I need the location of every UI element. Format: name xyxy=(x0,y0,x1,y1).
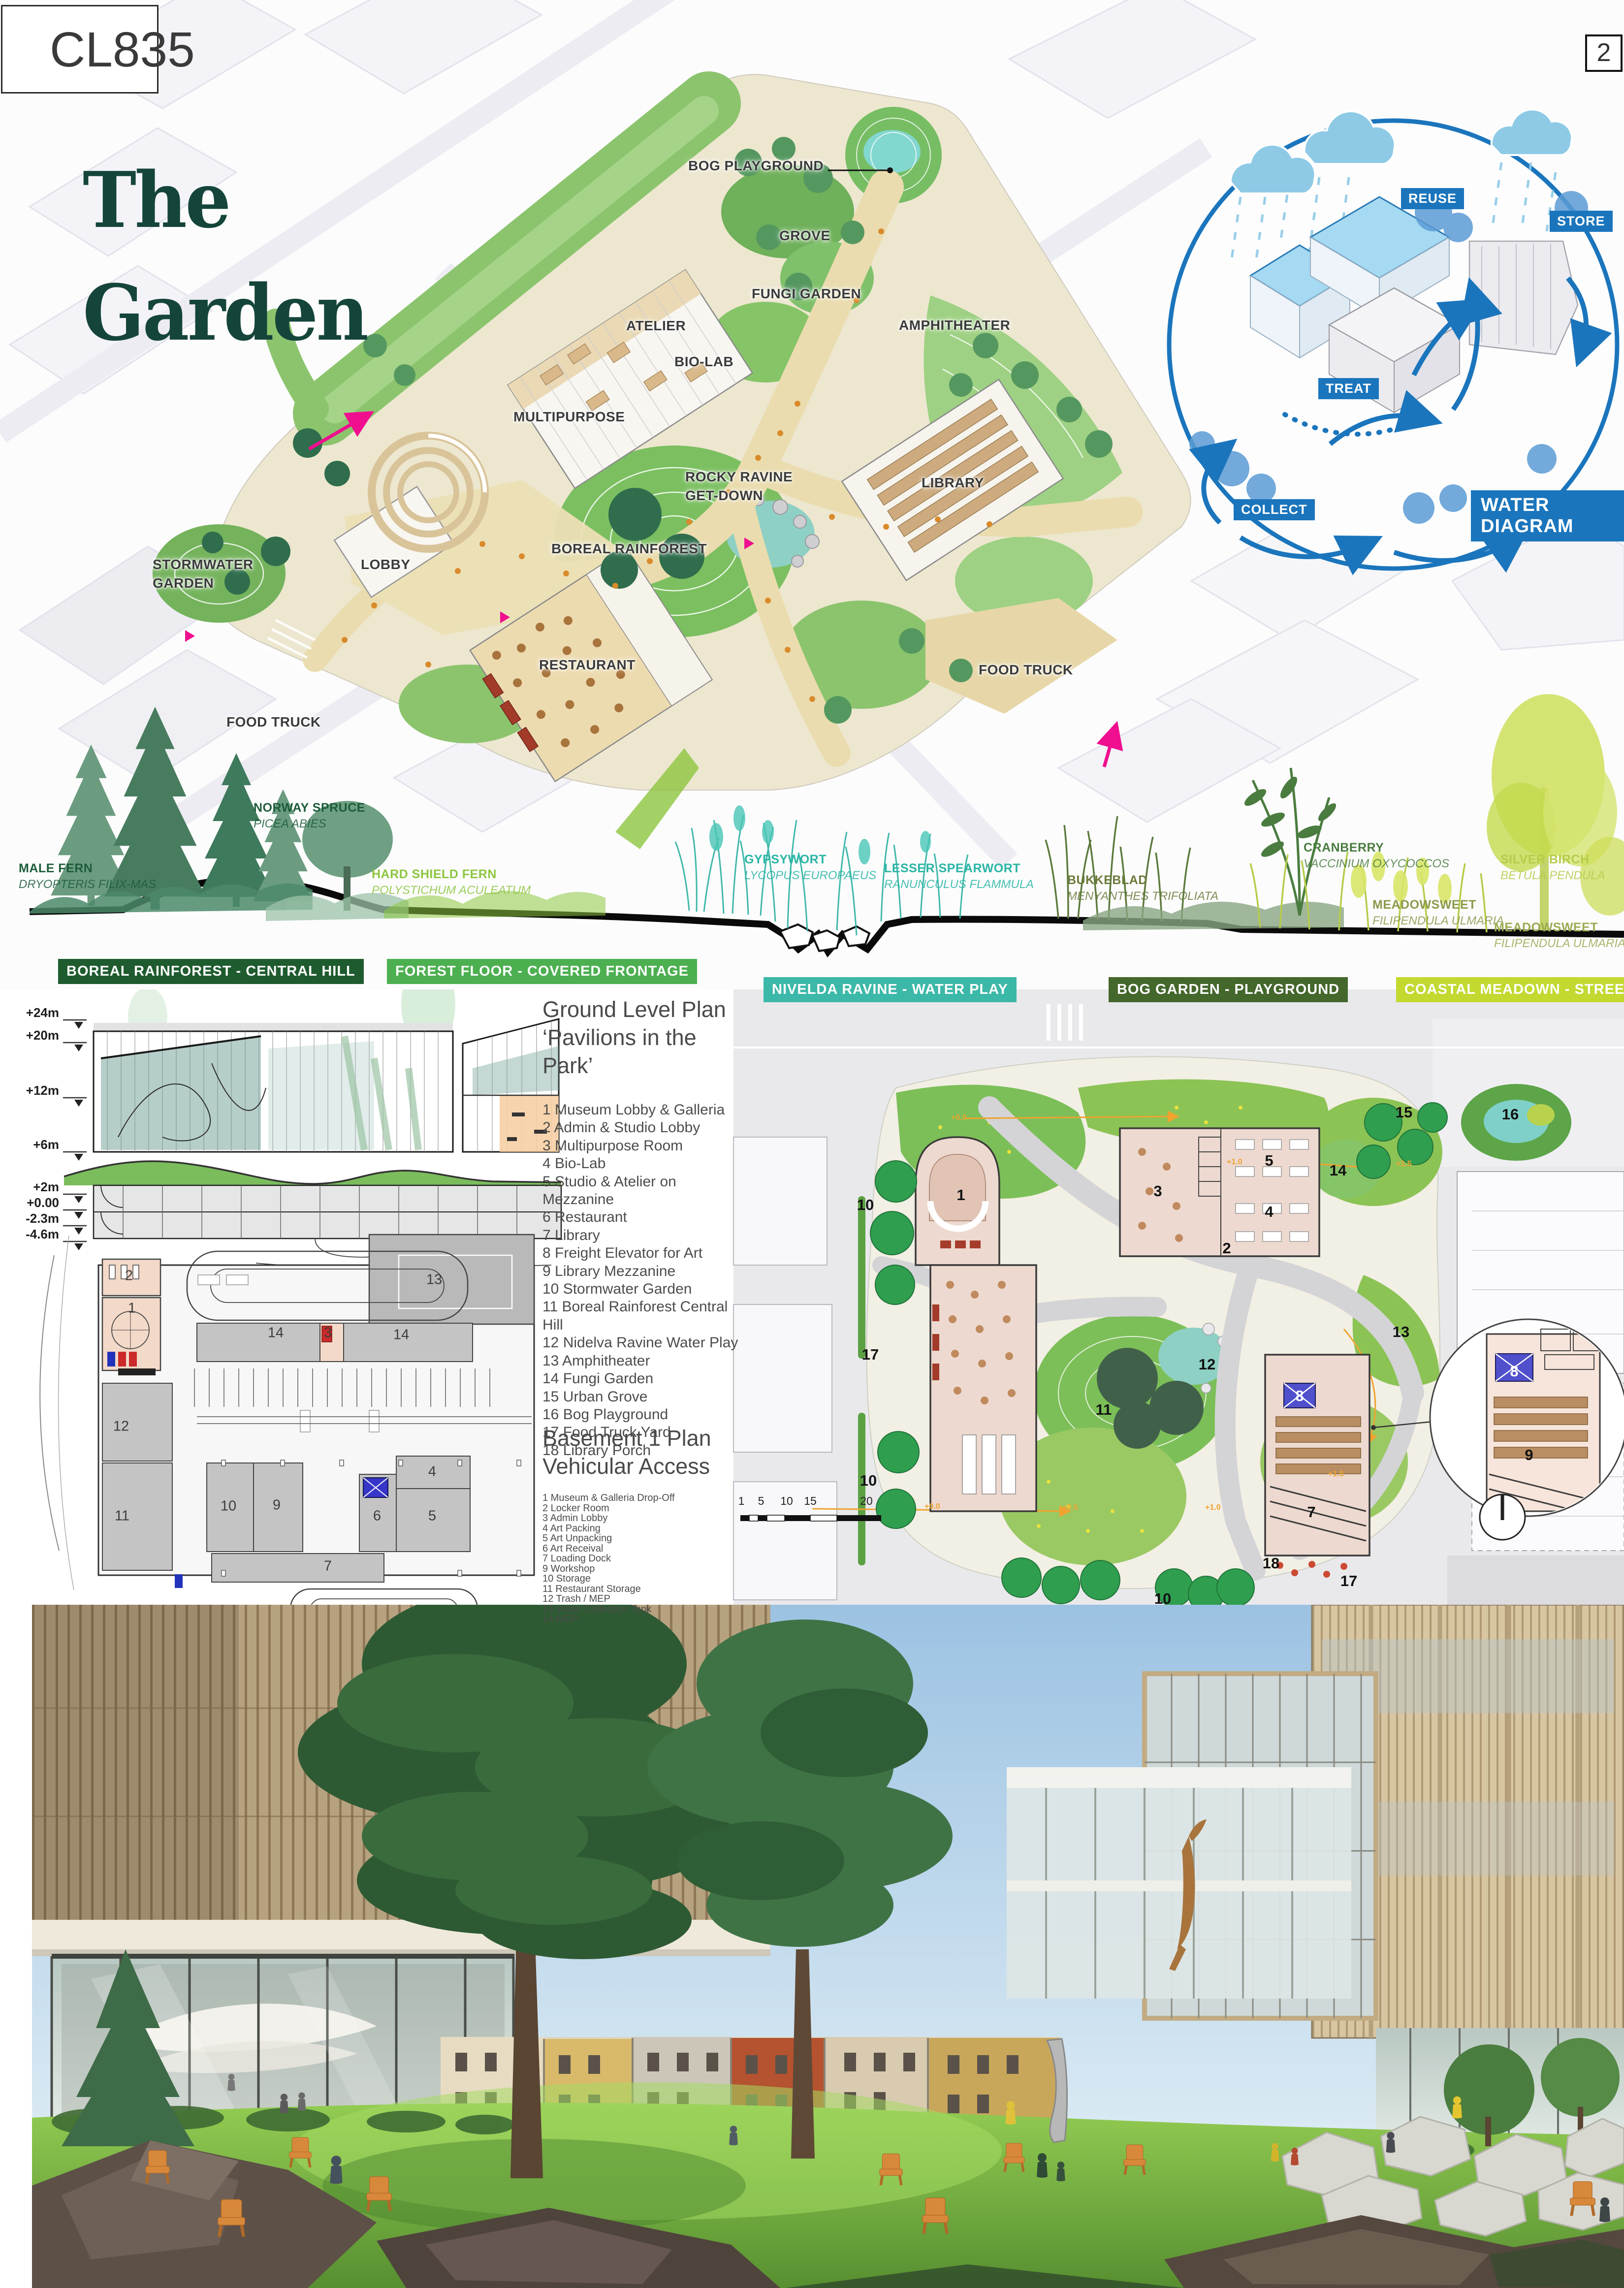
scale-1: 1 xyxy=(738,1494,745,1508)
elevation-6m: +6m xyxy=(4,1137,59,1152)
basement-legend-subtitle: Vehicular Access xyxy=(542,1452,749,1480)
species-silver-birch: SILVER BIRCHBETULA PENDULA xyxy=(1500,852,1605,883)
ground-legend-subtitle: ‘Pavilions in the Park’ xyxy=(542,1023,739,1080)
water-step-reuse: REUSE xyxy=(1401,188,1464,209)
legend-item: 12 Trash / MEP xyxy=(542,1594,749,1604)
page-number-box: 2 xyxy=(1585,34,1623,72)
gp-num-13: 13 xyxy=(1393,1323,1409,1341)
elevation-n4-6: -4.6m xyxy=(4,1227,59,1242)
entry-code: CL835 xyxy=(50,22,195,77)
spot-elev-c: +1.5 xyxy=(1396,1160,1412,1169)
legend-item: 13 Amphitheater xyxy=(542,1352,739,1370)
legend-item: 1 Museum & Galleria Drop-Off xyxy=(542,1493,749,1503)
gp-num-10b: 10 xyxy=(860,1472,877,1490)
gp-num-17b: 17 xyxy=(1340,1572,1357,1590)
legend-item: 8 Freight Elevator for Art xyxy=(542,1244,739,1262)
gp-num-15: 15 xyxy=(1396,1104,1412,1121)
bp-num-4: 4 xyxy=(428,1464,436,1480)
scale-5: 5 xyxy=(758,1494,764,1508)
spot-elev-d: +1.5 xyxy=(1328,1470,1344,1479)
elevation-24m: +24m xyxy=(4,1005,59,1020)
bp-num-3: 3 xyxy=(324,1325,332,1341)
legend-item: 15 Urban Grove xyxy=(542,1388,739,1406)
legend-item: 2 Admin & Studio Lobby xyxy=(542,1119,739,1137)
gp-num-14: 14 xyxy=(1330,1162,1346,1179)
legend-item: 11 Restaurant Storage xyxy=(542,1584,749,1594)
label-food-truck-west: FOOD TRUCK xyxy=(226,713,321,731)
legend-item: 7 Library xyxy=(542,1227,739,1244)
scale-10: 10 xyxy=(780,1494,793,1508)
label-multipurpose: MULTIPURPOSE xyxy=(513,408,625,426)
competition-board: CL835 2 The Garden BOG PLAYGROUND GROVE … xyxy=(0,0,1624,2288)
bp-num-12: 12 xyxy=(113,1419,129,1435)
label-boreal-rainforest: BOREAL RAINFOREST xyxy=(551,540,707,558)
water-diagram-title: WATER DIAGRAM xyxy=(1471,490,1624,541)
legend-item: 10 Stormwater Garden xyxy=(542,1280,739,1298)
basement-plan-legend: Basement 1 Plan Vehicular Access 1 Museu… xyxy=(542,1424,749,1624)
library-detail-bubble xyxy=(1430,1319,1624,1516)
bp-num-14a: 14 xyxy=(268,1325,284,1341)
zone-bar-forest-floor: FOREST FLOOR - COVERED FRONTAGE xyxy=(387,959,697,984)
elevation-2m: +2m xyxy=(4,1179,59,1195)
gp-num-10a: 10 xyxy=(857,1196,874,1214)
legend-item: 6 Art Receival xyxy=(542,1544,749,1554)
page-number: 2 xyxy=(1597,38,1611,67)
label-restaurant: RESTAURANT xyxy=(539,656,636,674)
scale-20: 20 xyxy=(860,1494,873,1508)
legend-item: 9 Library Mezzanine xyxy=(542,1263,739,1280)
species-lesser-spearwort: LESSER SPEARWORTRANUNCULUS FLAMMULA xyxy=(884,860,1034,892)
label-fungi-garden: FUNGI GARDEN xyxy=(752,285,861,303)
label-lobby: LOBBY xyxy=(361,555,411,574)
gp-num-4: 4 xyxy=(1265,1203,1273,1221)
ground-plan-legend: Ground Level Plan ‘Pavilions in the Park… xyxy=(542,995,739,1460)
legend-item: 5 Art Unpacking xyxy=(542,1533,749,1544)
legend-item: 7 Loading Dock xyxy=(542,1554,749,1564)
spot-elev-e: +0.0 xyxy=(924,1502,940,1511)
legend-item: 14 MEP xyxy=(542,1614,749,1624)
species-cranberry: CRANBERRYVACCINIUM OXYCOCCOS xyxy=(1304,840,1449,871)
legend-item: 5 Studio & Atelier on Mezzanine xyxy=(542,1173,739,1209)
legend-item: 2 Locker Room xyxy=(542,1503,749,1514)
zone-bar-nivelda-ravine: NIVELDA RAVINE - WATER PLAY xyxy=(764,977,1017,1002)
spot-elev-g: +1.0 xyxy=(1205,1503,1221,1512)
gp-num-7: 7 xyxy=(1307,1503,1315,1521)
label-atelier: ATELIER xyxy=(626,317,686,335)
spot-elev-b: +1.0 xyxy=(1227,1158,1242,1167)
legend-item: 4 Bio-Lab xyxy=(542,1155,739,1173)
gp-num-18: 18 xyxy=(1263,1555,1279,1572)
legend-item: 3 Multipurpose Room xyxy=(542,1137,739,1155)
restaurant-plan xyxy=(930,1265,1036,1511)
gp-num-16: 16 xyxy=(1502,1106,1519,1123)
library-plan xyxy=(1265,1355,1369,1578)
label-grove: GROVE xyxy=(779,226,830,245)
label-food-truck-east: FOOD TRUCK xyxy=(979,661,1073,679)
gp-num-8: 8 xyxy=(1295,1387,1304,1405)
ground-legend-list: 1 Museum Lobby & Galleria2 Admin & Studi… xyxy=(542,1101,739,1460)
entry-code-box: CL835 xyxy=(1,5,159,94)
gp-num-1: 1 xyxy=(956,1186,965,1204)
north-arrow xyxy=(1480,1494,1525,1540)
elevation-20m: +20m xyxy=(4,1028,59,1043)
basement-legend-list: 1 Museum & Galleria Drop-Off2 Locker Roo… xyxy=(542,1493,749,1624)
elevation-n2-3: -2.3m xyxy=(4,1211,59,1226)
gp-detail-num-9: 9 xyxy=(1525,1446,1533,1464)
section-drawing xyxy=(63,989,561,1268)
label-bio-lab: BIO-LAB xyxy=(674,352,733,371)
plans-drawings xyxy=(0,989,1624,1605)
gp-num-5: 5 xyxy=(1265,1152,1273,1170)
gp-num-10c: 10 xyxy=(1154,1590,1171,1608)
ground-level-plan-drawing xyxy=(733,989,1624,1605)
basement-legend-title: Basement 1 Plan xyxy=(542,1424,749,1452)
ground-legend-title: Ground Level Plan xyxy=(542,995,739,1023)
bp-num-10: 10 xyxy=(221,1498,236,1515)
species-bukkeblad: BUKKEBLADMENYANTHES TRIFOLIATA xyxy=(1067,872,1218,904)
legend-item: 1 Museum Lobby & Galleria xyxy=(542,1101,739,1119)
scale-bar xyxy=(740,1515,881,1521)
elevation-0: +0.00 xyxy=(4,1195,59,1210)
label-amphitheater: AMPHITHEATER xyxy=(899,316,1010,335)
legend-item: 11 Boreal Rainforest Central Hill xyxy=(542,1298,739,1334)
spot-elev-f: +0.5 xyxy=(1062,1503,1078,1512)
species-norway-spruce: NORWAY SPRUCEPICEA ABIES xyxy=(254,800,365,831)
species-meadowsweet-2: MEADOWSWEETFILIPENDULA ULMARIA xyxy=(1494,920,1624,951)
scale-15: 15 xyxy=(804,1494,817,1508)
elevation-12m: +12m xyxy=(4,1083,59,1098)
bp-num-14b: 14 xyxy=(393,1327,409,1343)
board-title: The Garden xyxy=(83,144,367,370)
bp-num-5: 5 xyxy=(428,1508,436,1525)
legend-item: 9 Workshop xyxy=(542,1564,749,1574)
gp-num-11: 11 xyxy=(1096,1401,1112,1419)
gp-num-17a: 17 xyxy=(862,1346,879,1364)
label-stormwater-garden: STORMWATER GARDEN xyxy=(153,555,254,593)
gp-detail-num-8: 8 xyxy=(1510,1363,1518,1380)
bp-num-11: 11 xyxy=(115,1508,129,1525)
gp-num-2: 2 xyxy=(1222,1239,1231,1257)
legend-item: 6 Restaurant xyxy=(542,1208,739,1226)
legend-item: 10 Storage xyxy=(542,1574,749,1584)
gp-num-3: 3 xyxy=(1153,1182,1162,1200)
species-male-fern: MALE FERNDRYOPTERIS FILIX-MAS xyxy=(19,860,156,892)
legend-item: 14 Fungi Garden xyxy=(542,1370,739,1388)
label-bog-playground: BOG PLAYGROUND xyxy=(688,157,824,175)
legend-item: 12 Nidelva Ravine Water Play xyxy=(542,1334,739,1352)
label-rocky-ravine: ROCKY RAVINE GET-DOWN xyxy=(685,468,793,505)
courtyard-rendering xyxy=(32,1605,1624,2288)
zone-bar-boreal-rainforest: BOREAL RAINFOREST - CENTRAL HILL xyxy=(58,959,364,984)
bp-num-2: 2 xyxy=(125,1268,133,1284)
zone-bar-bog-garden: BOG GARDEN - PLAYGROUND xyxy=(1109,977,1348,1002)
zone-bar-coastal-meadow: COASTAL MEADOWN - STREETSCAPE xyxy=(1396,977,1624,1002)
legend-item: 13 Water Collection Tank xyxy=(542,1604,749,1615)
bp-num-13: 13 xyxy=(426,1272,442,1288)
label-library: LIBRARY xyxy=(922,474,984,492)
legend-item: 3 Admin Lobby xyxy=(542,1513,749,1524)
species-gypsywort: GYPSYWORTLYCOPUS EUROPAEUS xyxy=(744,852,876,883)
bp-num-6: 6 xyxy=(373,1508,381,1525)
bp-num-1: 1 xyxy=(128,1301,136,1317)
legend-item: 4 Art Packing xyxy=(542,1524,749,1534)
species-meadowsweet-1: MEADOWSWEETFILIPENDULA ULMARIA xyxy=(1372,897,1504,928)
legend-item: 16 Bog Playground xyxy=(542,1406,739,1424)
bp-num-9: 9 xyxy=(273,1497,281,1514)
gp-num-12: 12 xyxy=(1199,1356,1215,1373)
species-hard-shield-fern: HARD SHIELD FERNPOLYSTICHUM ACULEATUM xyxy=(372,866,531,898)
bp-num-7: 7 xyxy=(324,1558,332,1575)
water-step-treat: TREAT xyxy=(1318,378,1379,399)
spot-elev-a: +0.0 xyxy=(951,1113,967,1122)
water-step-store: STORE xyxy=(1550,211,1613,232)
water-step-collect: COLLECT xyxy=(1234,499,1315,520)
